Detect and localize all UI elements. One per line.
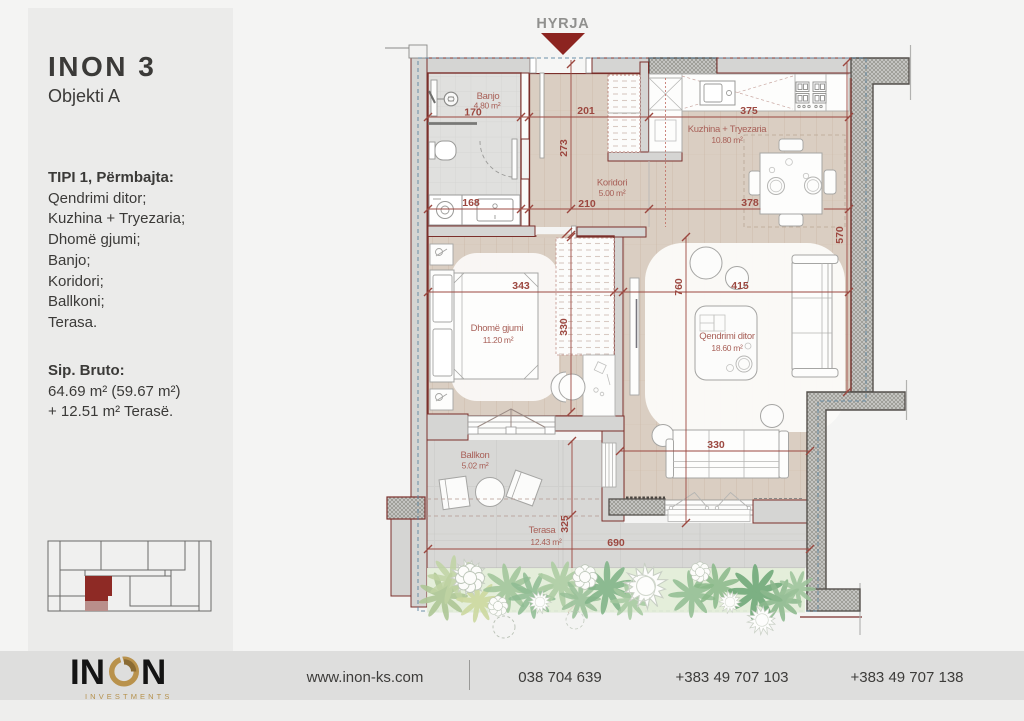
svg-text:11.20 m²: 11.20 m²	[483, 335, 514, 345]
svg-text:Ballkon: Ballkon	[460, 450, 489, 461]
svg-text:10.80 m²: 10.80 m²	[711, 135, 743, 145]
svg-text:570: 570	[834, 226, 846, 244]
svg-text:18.60 m²: 18.60 m²	[711, 343, 743, 353]
svg-text:201: 201	[577, 105, 595, 117]
svg-text:12.43 m²: 12.43 m²	[530, 537, 562, 547]
svg-text:Dhomë gjumi: Dhomë gjumi	[471, 323, 524, 334]
svg-text:210: 210	[578, 198, 596, 210]
svg-text:5.02 m²: 5.02 m²	[462, 461, 489, 471]
svg-text:5.00 m²: 5.00 m²	[599, 188, 626, 198]
svg-text:378: 378	[741, 197, 759, 209]
svg-text:168: 168	[462, 197, 480, 209]
svg-text:690: 690	[607, 537, 625, 549]
svg-text:415: 415	[731, 280, 749, 292]
svg-text:Terasa: Terasa	[529, 525, 557, 536]
svg-text:HYRJA: HYRJA	[536, 16, 589, 32]
svg-text:760: 760	[673, 278, 685, 296]
svg-text:330: 330	[558, 318, 570, 336]
svg-text:330: 330	[707, 439, 725, 451]
svg-text:Qendrimi ditor: Qendrimi ditor	[699, 331, 755, 342]
svg-text:Kuzhina + Tryezaria: Kuzhina + Tryezaria	[688, 124, 768, 135]
svg-text:343: 343	[512, 280, 530, 292]
svg-text:Koridori: Koridori	[597, 178, 628, 189]
svg-text:325: 325	[559, 515, 571, 533]
svg-text:4.80 m²: 4.80 m²	[474, 101, 501, 111]
svg-text:375: 375	[740, 105, 758, 117]
svg-text:273: 273	[558, 139, 570, 157]
